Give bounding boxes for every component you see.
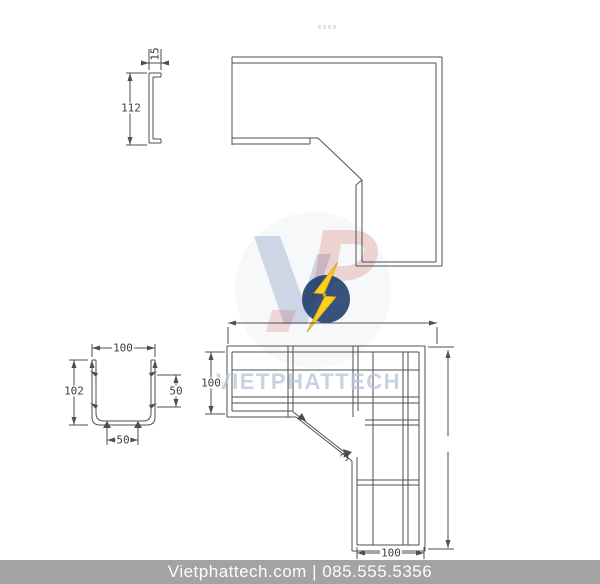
tray-plan-drawing	[205, 321, 454, 560]
dim-section-side-pitch: 50	[168, 386, 183, 397]
dim-section-width: 100	[112, 343, 134, 354]
cross-section-drawing	[69, 344, 181, 445]
linework	[0, 0, 600, 584]
dim-side-height: 112	[120, 103, 142, 114]
watermark-text: VIETPHATTECH	[216, 369, 401, 395]
dim-tray-arm-width: 100	[200, 378, 222, 389]
dim-section-bottom-pitch: 50	[115, 435, 130, 446]
dim-side-flange: 15	[150, 46, 161, 61]
drawing-canvas: VIETPHATTECH 112 15 100 102 50 50 100 10…	[0, 0, 600, 584]
footer-contact-text: Vietphattech.com | 085.555.5356	[168, 562, 432, 582]
dim-tray-bottom-width: 100	[380, 548, 402, 559]
corner-cover-drawing	[232, 57, 442, 266]
footer-bar: Vietphattech.com | 085.555.5356	[0, 560, 600, 584]
dim-section-height: 102	[63, 386, 85, 397]
side-profile-drawing	[126, 49, 169, 145]
